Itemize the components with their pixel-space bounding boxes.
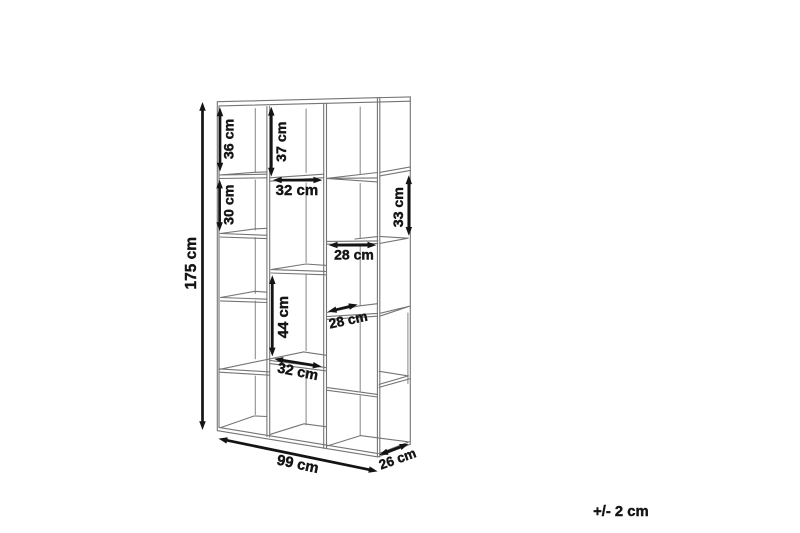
svg-text:28 cm: 28 cm bbox=[334, 246, 374, 262]
svg-text:175 cm: 175 cm bbox=[183, 237, 200, 290]
svg-text:99 cm: 99 cm bbox=[275, 453, 320, 477]
svg-text:33 cm: 33 cm bbox=[391, 187, 407, 227]
svg-text:37 cm: 37 cm bbox=[274, 122, 290, 162]
svg-text:32 cm: 32 cm bbox=[276, 182, 319, 199]
svg-text:44 cm: 44 cm bbox=[276, 296, 292, 338]
svg-text:30 cm: 30 cm bbox=[221, 185, 237, 225]
svg-text:+/- 2 cm: +/- 2 cm bbox=[593, 504, 649, 520]
svg-text:36 cm: 36 cm bbox=[222, 119, 238, 159]
